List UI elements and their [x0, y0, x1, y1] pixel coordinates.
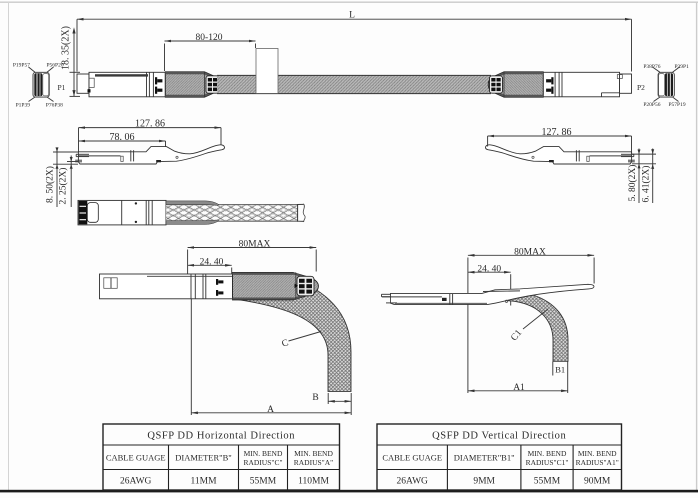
svg-text:RADIUS"A": RADIUS"A" [294, 458, 333, 467]
svg-text:MIN. BEND: MIN. BEND [244, 449, 283, 458]
svg-text:L: L [349, 11, 355, 21]
svg-text:8. 50(2X): 8. 50(2X) [45, 166, 56, 203]
svg-text:2. 25(2X): 2. 25(2X) [58, 168, 69, 205]
svg-text:11MM: 11MM [190, 477, 217, 487]
svg-text:26AWG: 26AWG [396, 477, 428, 487]
svg-text:C: C [281, 338, 290, 350]
svg-text:P56P20: P56P20 [47, 63, 64, 69]
svg-text:P2: P2 [637, 83, 645, 92]
svg-text:5. 80(2X): 5. 80(2X) [627, 165, 638, 202]
svg-text:DIAMETER"B1": DIAMETER"B1" [454, 453, 515, 463]
svg-text:DIAMETER"B": DIAMETER"B" [175, 453, 232, 463]
svg-text:9MM: 9MM [473, 477, 495, 487]
svg-text:A: A [267, 405, 274, 415]
svg-text:CABLE GUAGE: CABLE GUAGE [382, 453, 442, 463]
svg-text:24. 40: 24. 40 [477, 264, 501, 274]
svg-text:6. 41(2X): 6. 41(2X) [641, 166, 652, 203]
svg-text:MIN. BEND: MIN. BEND [528, 449, 567, 458]
svg-text:26AWG: 26AWG [120, 477, 152, 487]
svg-text:P39P1: P39P1 [675, 64, 690, 70]
svg-text:80MAX: 80MAX [239, 240, 271, 250]
svg-text:P38P76: P38P76 [643, 64, 660, 70]
svg-text:QSFP DD Vertical Direction: QSFP DD Vertical Direction [432, 431, 566, 442]
svg-text:P20P56: P20P56 [643, 102, 660, 108]
svg-text:80-120: 80-120 [196, 33, 223, 43]
svg-text:P1: P1 [58, 83, 66, 92]
svg-text:MIN. BEND: MIN. BEND [578, 449, 617, 458]
svg-text:C1: C1 [509, 328, 524, 343]
svg-text:110MM: 110MM [298, 477, 329, 487]
svg-text:MIN. BEND: MIN. BEND [294, 449, 333, 458]
svg-text:RADIUS"C1": RADIUS"C1" [526, 458, 569, 467]
svg-text:P1P39: P1P39 [16, 102, 31, 108]
svg-text:55MM: 55MM [534, 477, 561, 487]
svg-text:CABLE GUAGE: CABLE GUAGE [106, 453, 166, 463]
svg-text:B1: B1 [555, 365, 565, 375]
svg-text:A1: A1 [513, 383, 525, 393]
svg-text:RADIUS"C": RADIUS"C" [243, 458, 282, 467]
svg-text:90MM: 90MM [584, 477, 611, 487]
svg-text:80MAX: 80MAX [514, 247, 546, 257]
svg-text:127. 86: 127. 86 [542, 127, 572, 138]
svg-text:B: B [312, 393, 318, 403]
svg-text:RADIUS"A1": RADIUS"A1" [576, 458, 619, 467]
svg-text:P19P57: P19P57 [13, 62, 30, 68]
svg-text:55MM: 55MM [250, 477, 277, 487]
svg-text:P57P19: P57P19 [669, 102, 686, 108]
svg-text:127. 86: 127. 86 [135, 119, 165, 130]
svg-text:24. 40: 24. 40 [200, 257, 224, 267]
svg-text:QSFP DD Horizontal Direction: QSFP DD Horizontal Direction [147, 431, 295, 442]
svg-text:78. 06: 78. 06 [110, 132, 135, 143]
svg-text:P76P38: P76P38 [46, 103, 63, 109]
